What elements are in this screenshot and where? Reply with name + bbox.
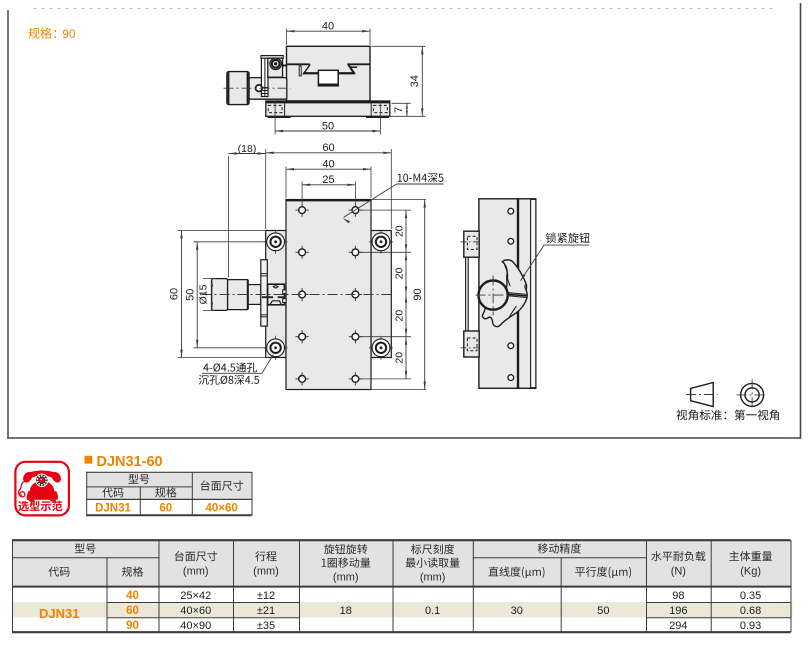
svg-text:7: 7: [393, 107, 405, 113]
svg-text:40×60: 40×60: [180, 605, 211, 617]
svg-text:0.35: 0.35: [740, 590, 761, 602]
svg-text:90: 90: [412, 288, 424, 300]
svg-text:30: 30: [511, 605, 523, 617]
svg-text:90: 90: [126, 620, 139, 632]
svg-text:98: 98: [672, 590, 684, 602]
svg-text:90: 90: [62, 27, 76, 41]
svg-text:0.1: 0.1: [425, 605, 440, 617]
svg-text:50: 50: [597, 605, 609, 617]
svg-text:(mm): (mm): [253, 565, 279, 577]
svg-text:25×42: 25×42: [180, 590, 211, 602]
svg-text:(N): (N): [671, 565, 686, 577]
svg-text:60: 60: [126, 605, 139, 617]
svg-text:(mm): (mm): [333, 571, 359, 583]
svg-text:294: 294: [669, 620, 687, 632]
svg-text:Ø15: Ø15: [197, 284, 209, 304]
svg-text:60: 60: [322, 142, 334, 154]
svg-text:0.93: 0.93: [740, 620, 761, 632]
svg-text:DJN31: DJN31: [39, 606, 79, 621]
svg-text:±12: ±12: [257, 590, 275, 602]
svg-text:0.68: 0.68: [740, 605, 761, 617]
svg-text:40: 40: [322, 159, 334, 171]
svg-text:DJN31-60: DJN31-60: [97, 454, 163, 470]
svg-text:20: 20: [393, 267, 405, 279]
svg-text:DJN31: DJN31: [95, 502, 131, 514]
svg-text:18: 18: [340, 605, 352, 617]
svg-text:20: 20: [393, 310, 405, 322]
svg-text:40: 40: [126, 590, 139, 602]
svg-text:60: 60: [159, 502, 172, 514]
svg-text:(Kg): (Kg): [740, 565, 761, 577]
svg-text:20: 20: [393, 225, 405, 237]
svg-text:25: 25: [322, 174, 334, 186]
svg-text:±21: ±21: [257, 605, 275, 617]
svg-text:34: 34: [409, 75, 421, 87]
svg-text:196: 196: [669, 605, 687, 617]
svg-text:40: 40: [322, 21, 334, 33]
svg-text:40×90: 40×90: [180, 620, 211, 632]
svg-text:(mm): (mm): [183, 565, 209, 577]
svg-text:40×60: 40×60: [205, 502, 237, 514]
svg-text:60: 60: [169, 288, 181, 300]
svg-text:±35: ±35: [257, 620, 275, 632]
svg-text:50: 50: [322, 120, 334, 132]
svg-text:(18): (18): [238, 143, 257, 155]
svg-text:20: 20: [393, 352, 405, 364]
svg-text:50: 50: [184, 289, 196, 301]
svg-text:(mm): (mm): [420, 571, 446, 583]
